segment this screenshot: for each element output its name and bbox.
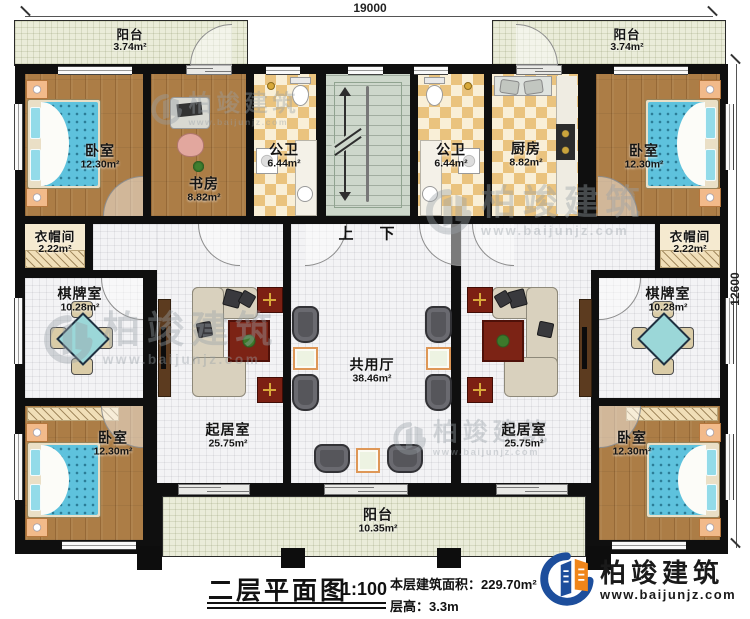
sofa-cushion — [196, 321, 214, 339]
room-label-bedroom-tr: 卧室12.30m² — [624, 143, 663, 170]
pillow — [705, 107, 716, 139]
armchair-icon — [314, 444, 350, 473]
room-label-bath-left: 公卫6.44m² — [267, 142, 300, 169]
window — [614, 66, 688, 75]
side-table-icon — [293, 347, 318, 370]
nightstand-icon — [699, 80, 721, 99]
room-label-closet-right: 衣帽间2.22m² — [670, 230, 711, 256]
dimension-tick — [707, 6, 718, 17]
tv-icon — [161, 327, 166, 369]
dimension-top-label: 19000 — [330, 1, 410, 15]
window — [58, 66, 132, 75]
window — [725, 104, 734, 170]
coffee-table-icon — [228, 320, 270, 362]
stair-arrow-up-icon — [339, 87, 351, 96]
dimension-line-top — [25, 16, 713, 17]
title-underline — [207, 607, 386, 609]
kitchen-sink-icon — [494, 76, 552, 96]
sliding-door — [496, 484, 568, 495]
room-label-chess-left: 棋牌室10.28m² — [58, 286, 103, 313]
window — [348, 66, 383, 75]
washbasin-icon — [297, 186, 313, 202]
plant-icon — [193, 161, 204, 172]
monitor-icon — [176, 102, 202, 118]
stair-down-label: 下 — [379, 223, 394, 244]
nightstand-icon — [26, 80, 48, 99]
pillow — [30, 107, 41, 139]
room-label-bedroom-br: 卧室12.30m² — [612, 430, 651, 457]
desk-chair-icon — [177, 133, 204, 157]
nightstand-icon — [699, 423, 721, 442]
drawing-scale: 1:100 — [341, 579, 387, 600]
sofa-chaise-icon — [192, 357, 246, 397]
sliding-door — [178, 484, 250, 495]
corridor-left — [93, 224, 157, 270]
corridor-right — [591, 224, 655, 270]
sofa-cushion — [537, 321, 555, 339]
sink-basin — [523, 79, 544, 96]
armchair-icon — [425, 306, 452, 343]
column — [437, 548, 461, 568]
coffee-table-icon — [482, 320, 524, 362]
balcony-door-opening — [324, 484, 408, 495]
balcony-door-opening — [516, 65, 562, 75]
end-table-icon — [257, 377, 283, 403]
pillow — [30, 484, 41, 511]
floor-height-text: 层高：3.3m — [390, 596, 459, 615]
stair-up-label: 上 — [338, 223, 353, 244]
floor-area-text: 本层建筑面积：229.70m² — [390, 574, 537, 593]
room-label-chess-right: 棋牌室10.28m² — [646, 286, 691, 313]
sofa-chaise-icon — [504, 357, 558, 397]
window — [725, 434, 734, 500]
floor-drain-icon — [464, 82, 472, 90]
nightstand-icon — [26, 188, 48, 207]
dimension-tick — [730, 54, 741, 65]
toilet-icon — [424, 77, 445, 84]
armchair-icon — [387, 444, 423, 473]
room-label-bedroom-bl: 卧室12.30m² — [93, 430, 132, 457]
dimension-tick — [20, 6, 31, 17]
tv-icon — [582, 327, 587, 369]
room-label-closet-left: 衣帽间2.22m² — [35, 230, 76, 256]
stair-arrow-down-icon — [339, 192, 351, 201]
armchair-icon — [292, 306, 319, 343]
room-label-balcony-tr: 阳台3.74m² — [610, 28, 643, 54]
pillow — [705, 149, 716, 181]
end-table-icon — [467, 287, 493, 313]
nightstand-icon — [26, 423, 48, 442]
bed-icon — [27, 442, 101, 518]
stove-icon — [556, 124, 575, 160]
side-table-icon — [356, 448, 380, 473]
bed-icon — [646, 442, 720, 518]
floor-drain-icon — [267, 82, 275, 90]
room-label-bath-right: 公卫6.44m² — [434, 142, 467, 169]
room-label-study: 书房8.82m² — [187, 176, 220, 203]
company-logo-url: www.baijunjz.com — [600, 587, 736, 602]
window — [14, 434, 23, 500]
pillow — [30, 149, 41, 181]
room-label-bedroom-tl: 卧室12.30m² — [80, 143, 119, 170]
room-stairwell — [326, 74, 410, 216]
company-logo-icon — [538, 551, 594, 607]
column — [137, 546, 162, 570]
company-logo-name: 柏竣建筑 — [600, 553, 724, 590]
room-label-balcony-bottom: 阳台10.35m² — [358, 507, 397, 534]
window — [414, 66, 448, 75]
room-label-shared-hall: 共用厅38.46m² — [350, 357, 395, 384]
pillow — [30, 449, 41, 476]
dimension-right-label: 12600 — [728, 260, 742, 318]
column — [281, 548, 305, 568]
nightstand-icon — [699, 518, 721, 537]
window — [14, 104, 23, 170]
pillow — [706, 484, 717, 511]
nightstand-icon — [26, 518, 48, 537]
side-table-icon — [426, 347, 451, 370]
balcony-door-opening — [186, 65, 232, 75]
window — [62, 541, 136, 550]
washbasin-icon — [422, 186, 438, 202]
pillow — [706, 449, 717, 476]
room-label-kitchen: 厨房8.82m² — [509, 141, 542, 168]
room-label-living-right: 起居室25.75m² — [502, 422, 547, 449]
room-label-balcony-tl: 阳台3.74m² — [113, 28, 146, 54]
end-table-icon — [257, 287, 283, 313]
armchair-icon — [425, 374, 452, 411]
stair-rail — [366, 86, 369, 202]
title-underline — [207, 602, 386, 604]
room-label-living-left: 起居室25.75m² — [206, 422, 251, 449]
window — [14, 298, 23, 364]
sink-basin — [499, 79, 520, 96]
window — [612, 541, 686, 550]
end-table-icon — [467, 377, 493, 403]
floor-plan: 19000 12600 — [0, 0, 750, 619]
window — [266, 66, 300, 75]
nightstand-icon — [699, 188, 721, 207]
armchair-icon — [292, 374, 319, 411]
toilet-icon — [290, 77, 311, 84]
